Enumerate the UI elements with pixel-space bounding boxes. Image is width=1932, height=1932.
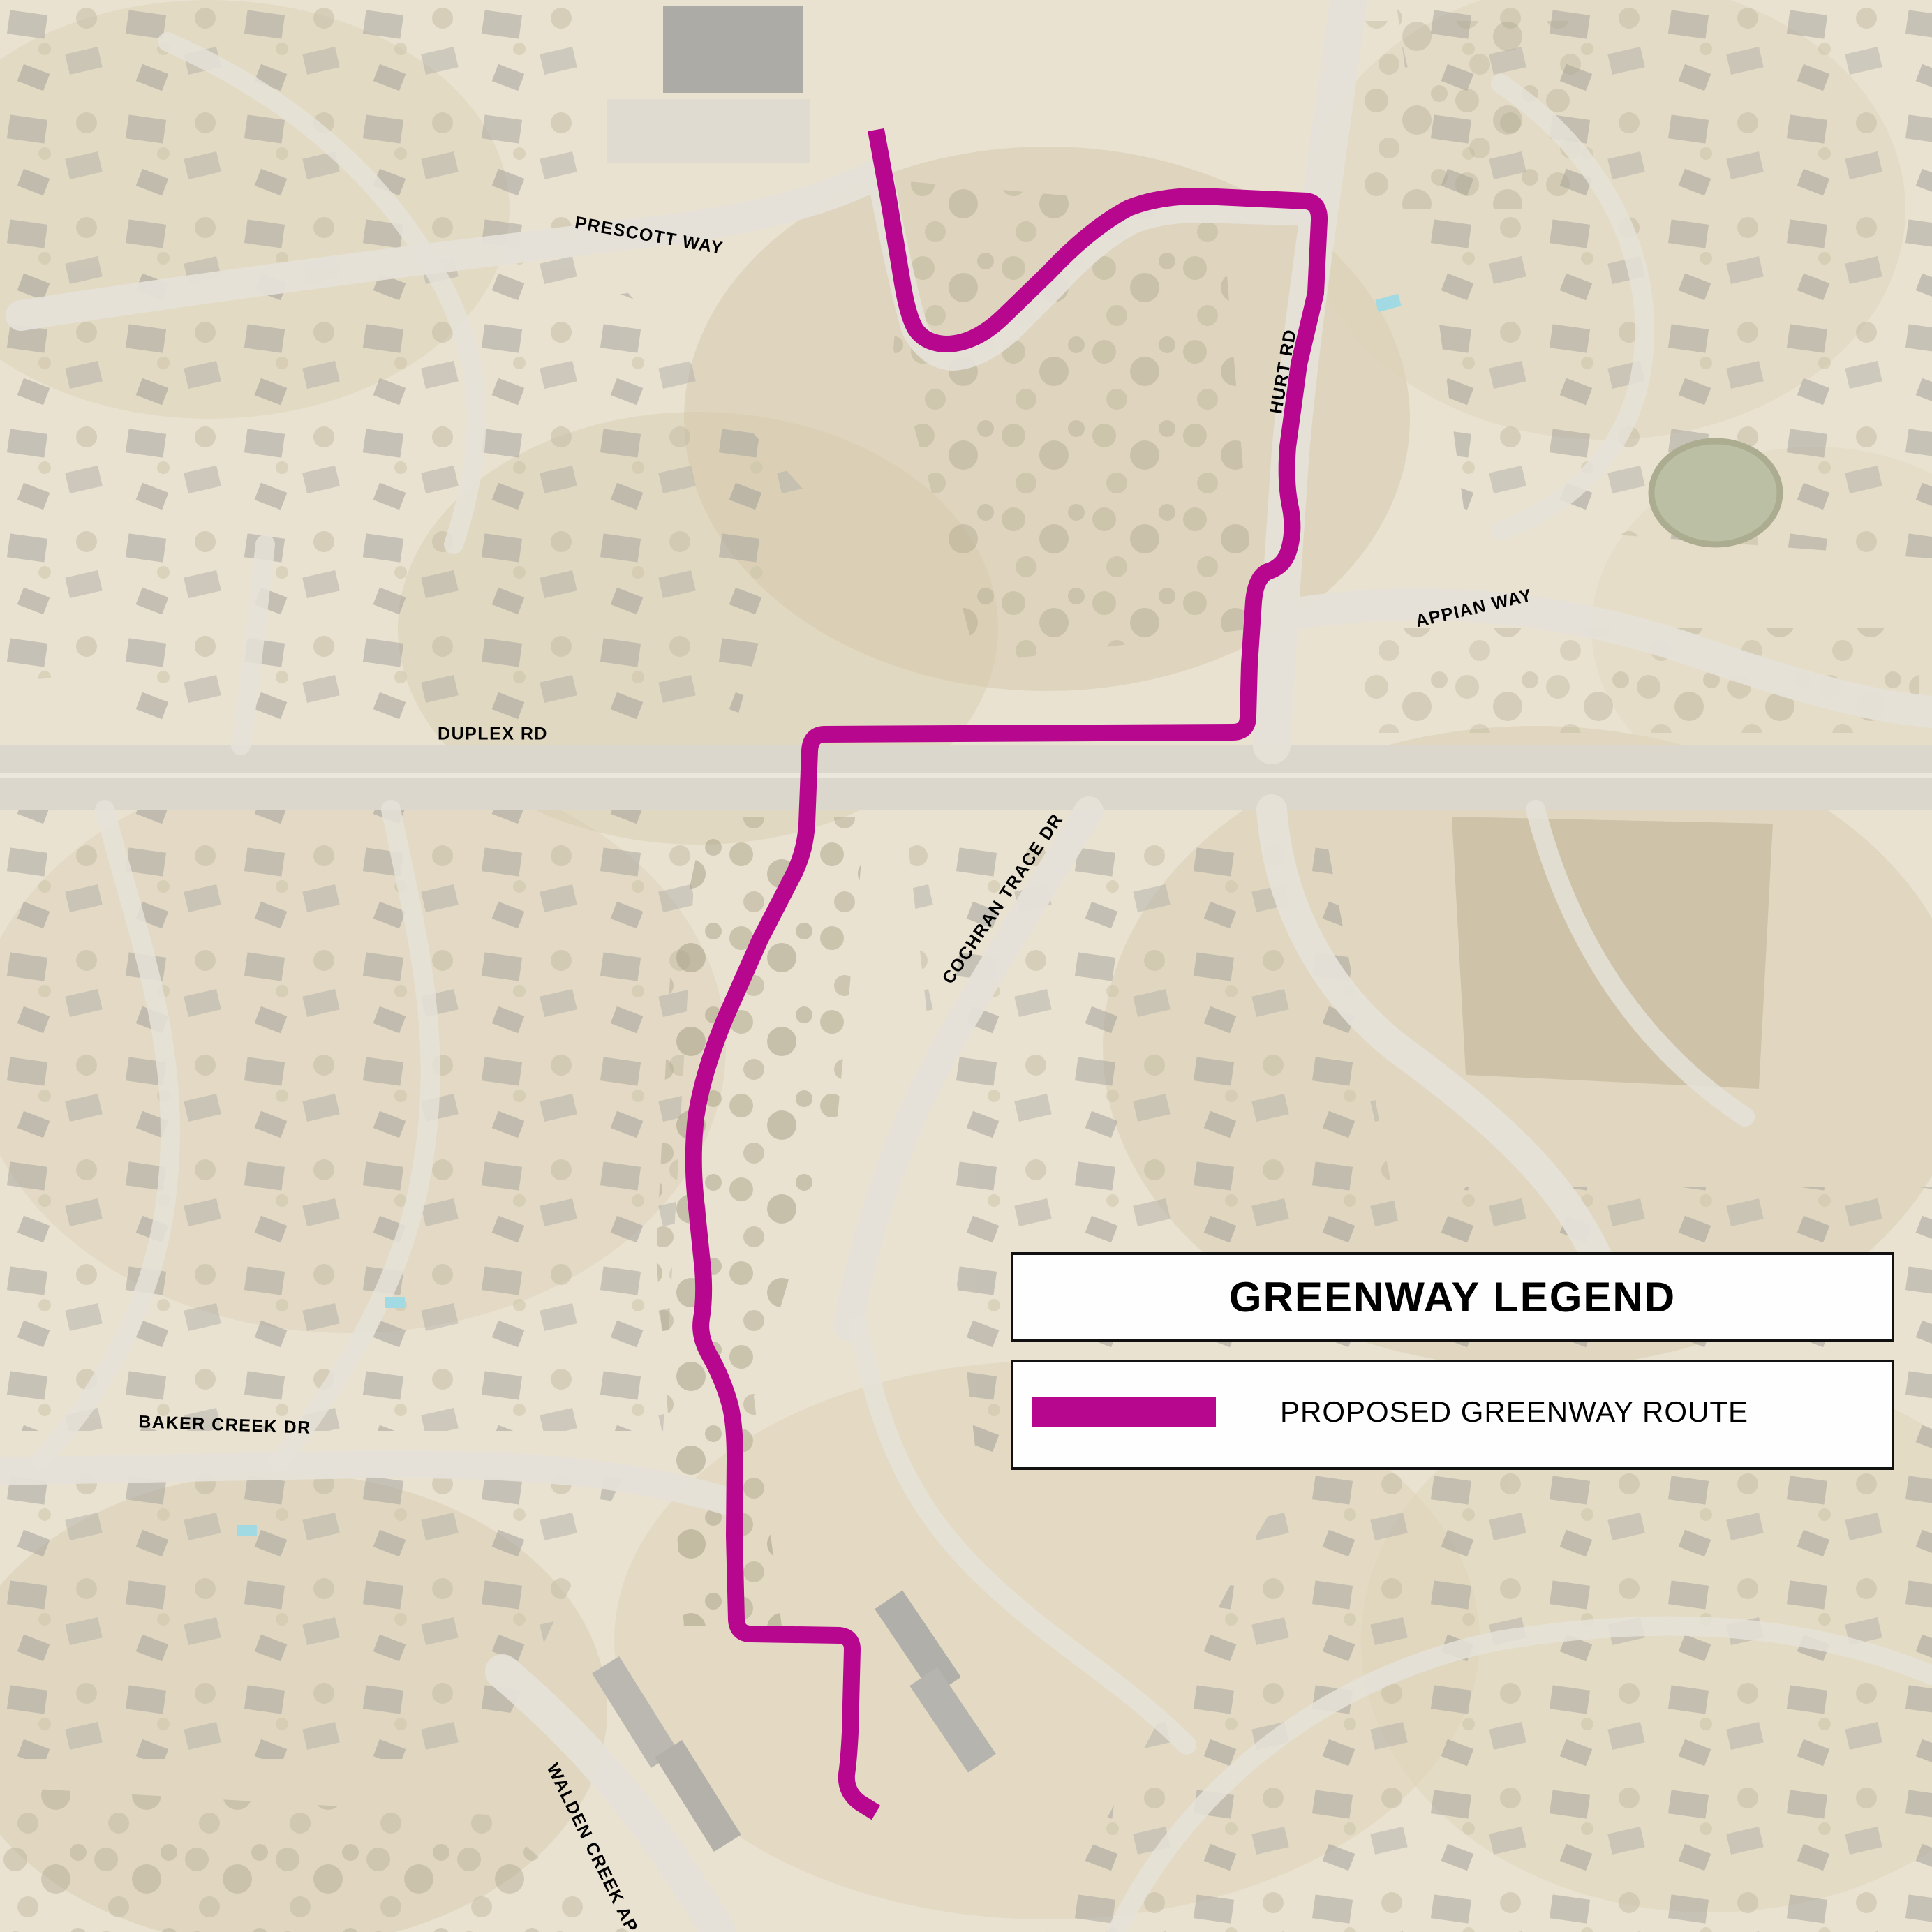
legend-title-box: GREENWAY LEGEND [1011,1252,1894,1342]
legend-route-swatch [1032,1397,1216,1427]
legend-route-label: PROPOSED GREENWAY ROUTE [1280,1395,1748,1429]
legend-item-box: PROPOSED GREENWAY ROUTE [1011,1360,1894,1470]
legend-title: GREENWAY LEGEND [1229,1273,1676,1321]
road-label-duplex-rd: DUPLEX RD [438,726,548,743]
greenway-map: PRESCOTT WAY HURT RD APPIAN WAY DUPLEX R… [0,0,1932,1932]
